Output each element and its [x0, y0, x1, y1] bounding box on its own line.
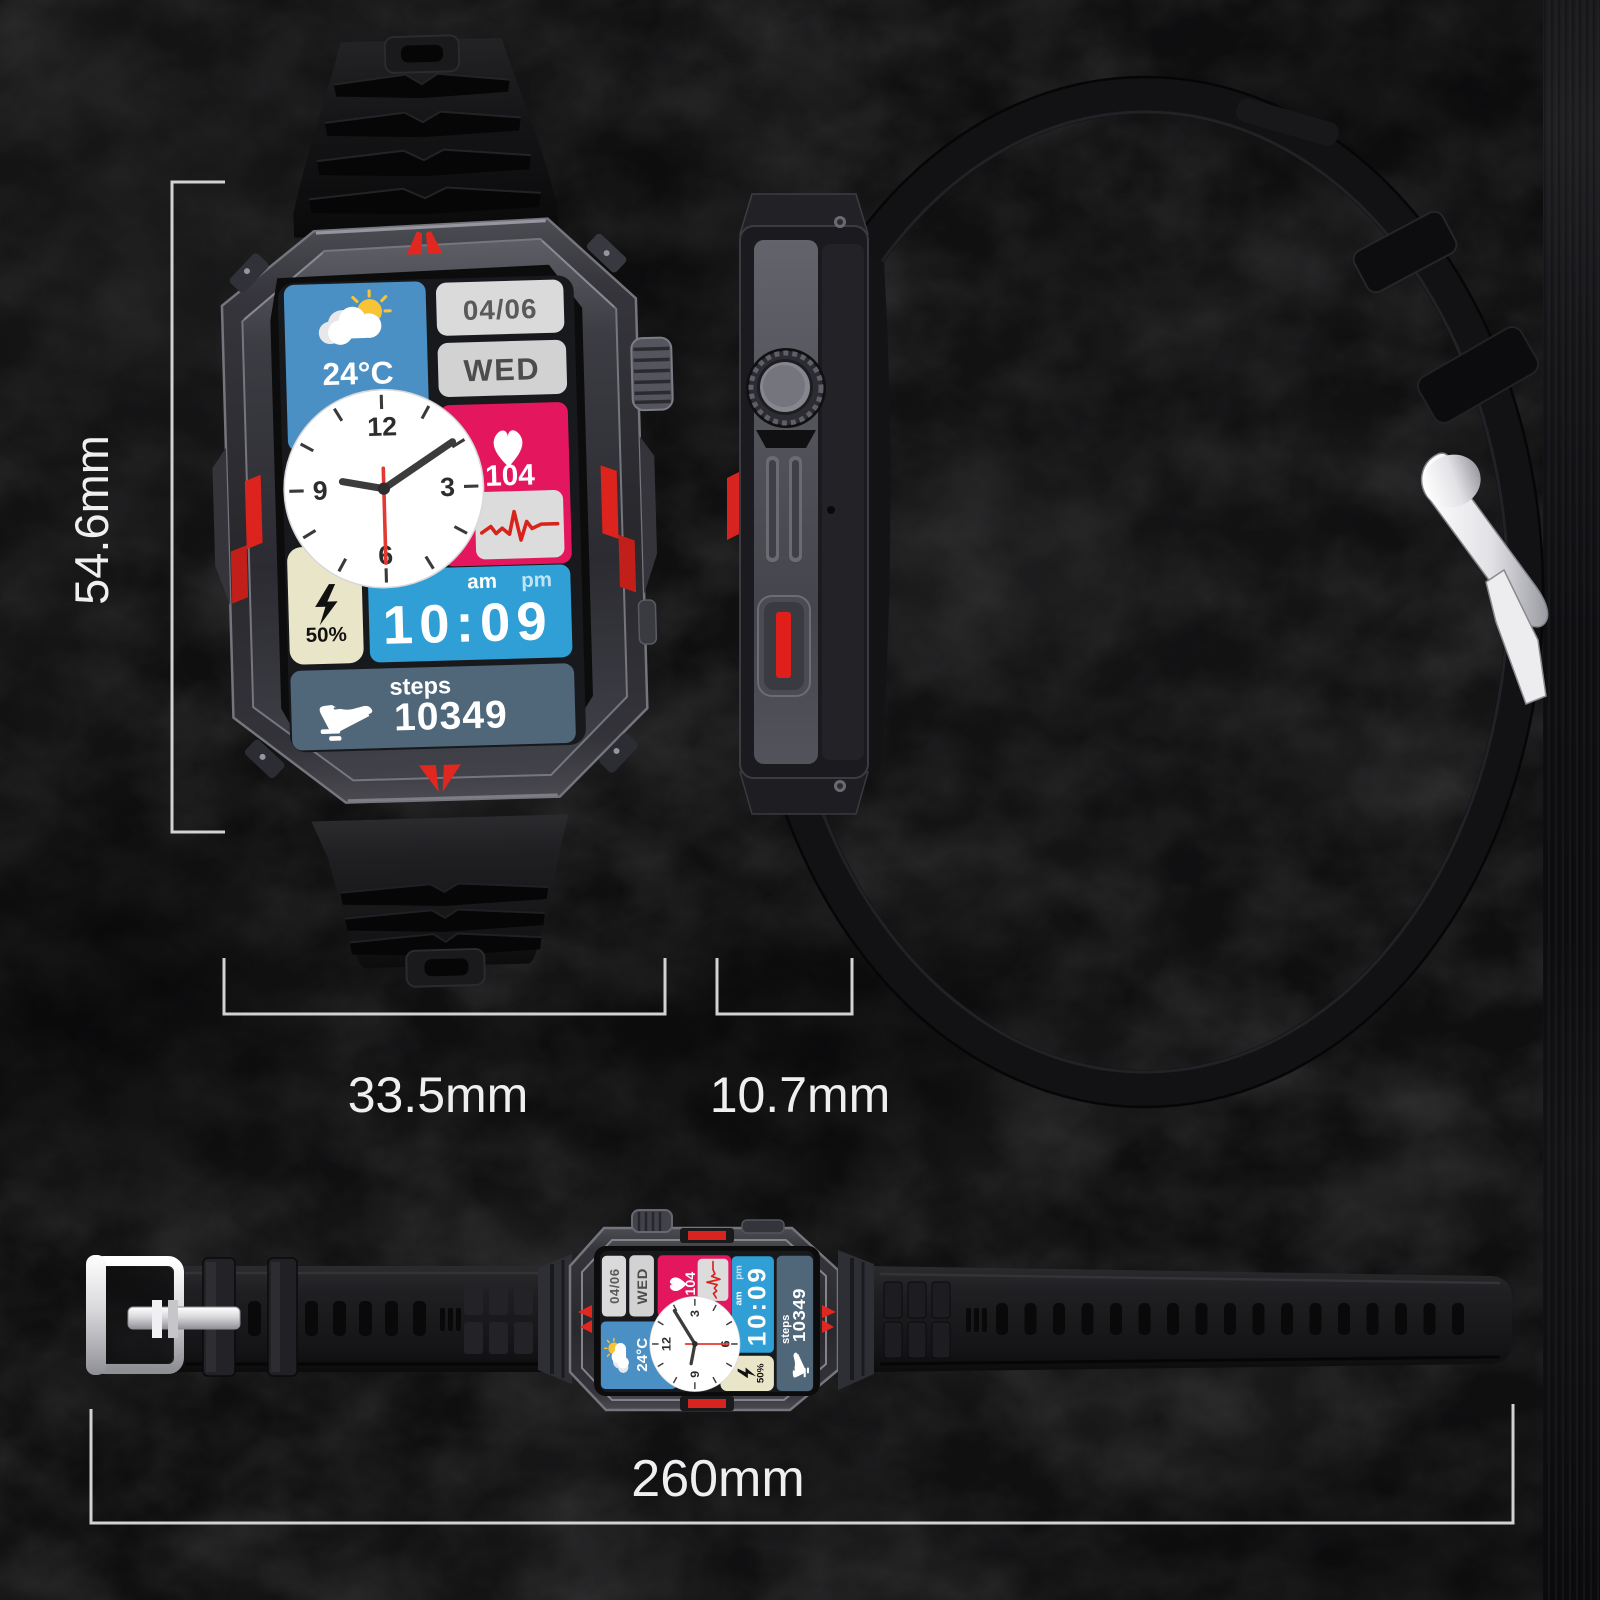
- svg-text:33.5mm: 33.5mm: [348, 1067, 529, 1123]
- svg-text:10.7mm: 10.7mm: [710, 1067, 891, 1123]
- svg-text:54.6mm: 54.6mm: [65, 435, 118, 605]
- svg-text:260mm: 260mm: [631, 1450, 804, 1508]
